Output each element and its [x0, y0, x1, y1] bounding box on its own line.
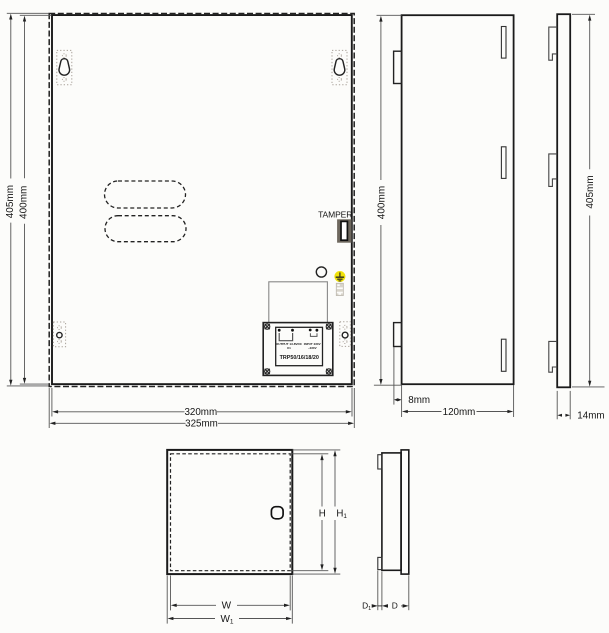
svg-text:~230V: ~230V — [308, 346, 317, 350]
svg-text:405mm: 405mm — [5, 185, 16, 218]
svg-text:400mm: 400mm — [376, 186, 387, 219]
svg-text:TAMPER: TAMPER — [318, 209, 352, 219]
svg-text:TRP50/16/18/20: TRP50/16/18/20 — [280, 355, 319, 361]
svg-text:14mm: 14mm — [577, 410, 604, 421]
svg-text:U1: U1 — [287, 346, 291, 350]
svg-text:405mm: 405mm — [585, 175, 596, 208]
svg-text:400mm: 400mm — [18, 186, 29, 219]
svg-text:120mm: 120mm — [443, 407, 476, 418]
svg-text:8mm: 8mm — [408, 395, 430, 406]
svg-text:D: D — [392, 601, 398, 611]
svg-text:320mm: 320mm — [184, 407, 217, 418]
svg-text:325mm: 325mm — [185, 419, 218, 430]
svg-text:H: H — [319, 509, 326, 520]
svg-text:W: W — [222, 601, 232, 612]
